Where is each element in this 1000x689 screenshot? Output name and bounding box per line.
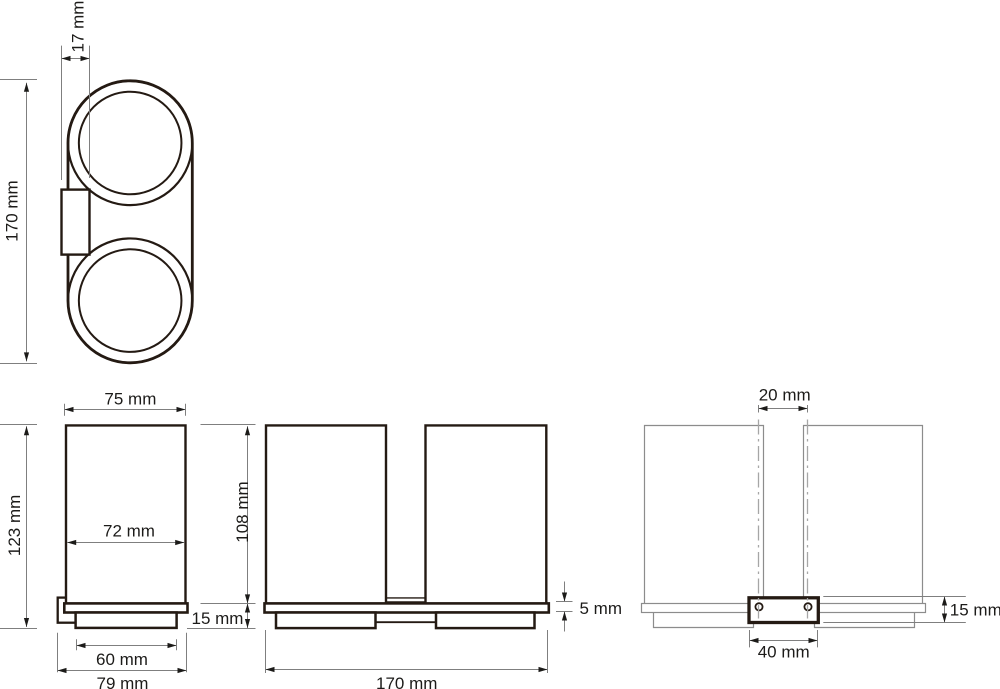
svg-text:17 mm: 17 mm: [69, 1, 88, 53]
svg-text:108 mm: 108 mm: [233, 481, 252, 542]
svg-text:15 mm: 15 mm: [192, 609, 244, 628]
svg-text:20 mm: 20 mm: [759, 385, 811, 404]
svg-text:170 mm: 170 mm: [376, 674, 437, 689]
svg-text:79 mm: 79 mm: [97, 674, 149, 689]
svg-text:72 mm: 72 mm: [103, 521, 155, 540]
svg-text:40 mm: 40 mm: [758, 643, 810, 662]
svg-text:170 mm: 170 mm: [3, 180, 22, 241]
svg-text:15 mm: 15 mm: [950, 601, 1000, 620]
svg-text:123 mm: 123 mm: [5, 495, 24, 556]
svg-text:60 mm: 60 mm: [96, 650, 148, 669]
svg-text:5 mm: 5 mm: [580, 599, 623, 618]
svg-text:75 mm: 75 mm: [104, 389, 156, 408]
